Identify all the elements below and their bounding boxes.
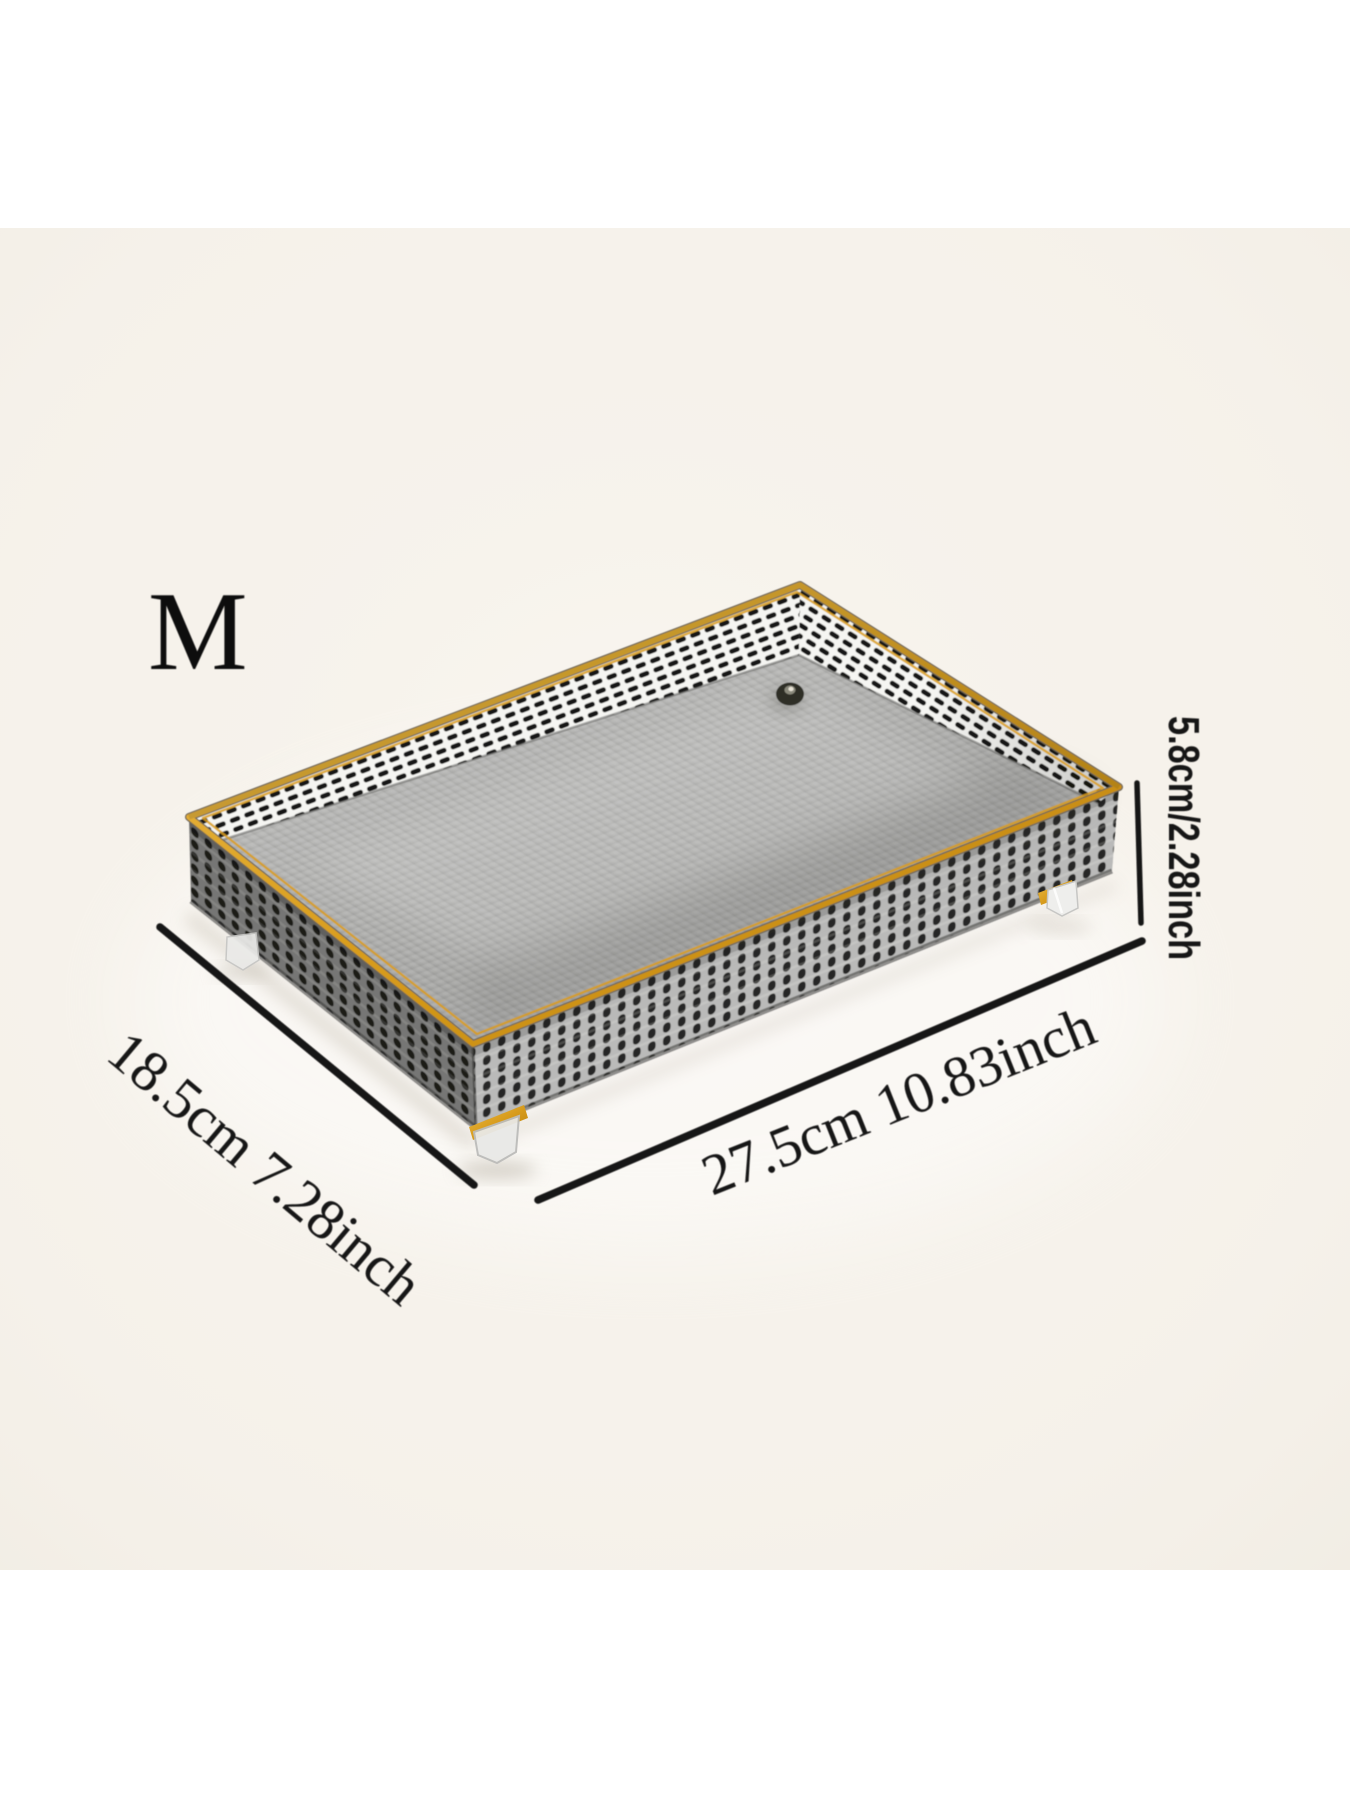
svg-text:M: M bbox=[148, 570, 248, 694]
svg-text:5.8cm/2.28inch: 5.8cm/2.28inch bbox=[1159, 716, 1208, 960]
